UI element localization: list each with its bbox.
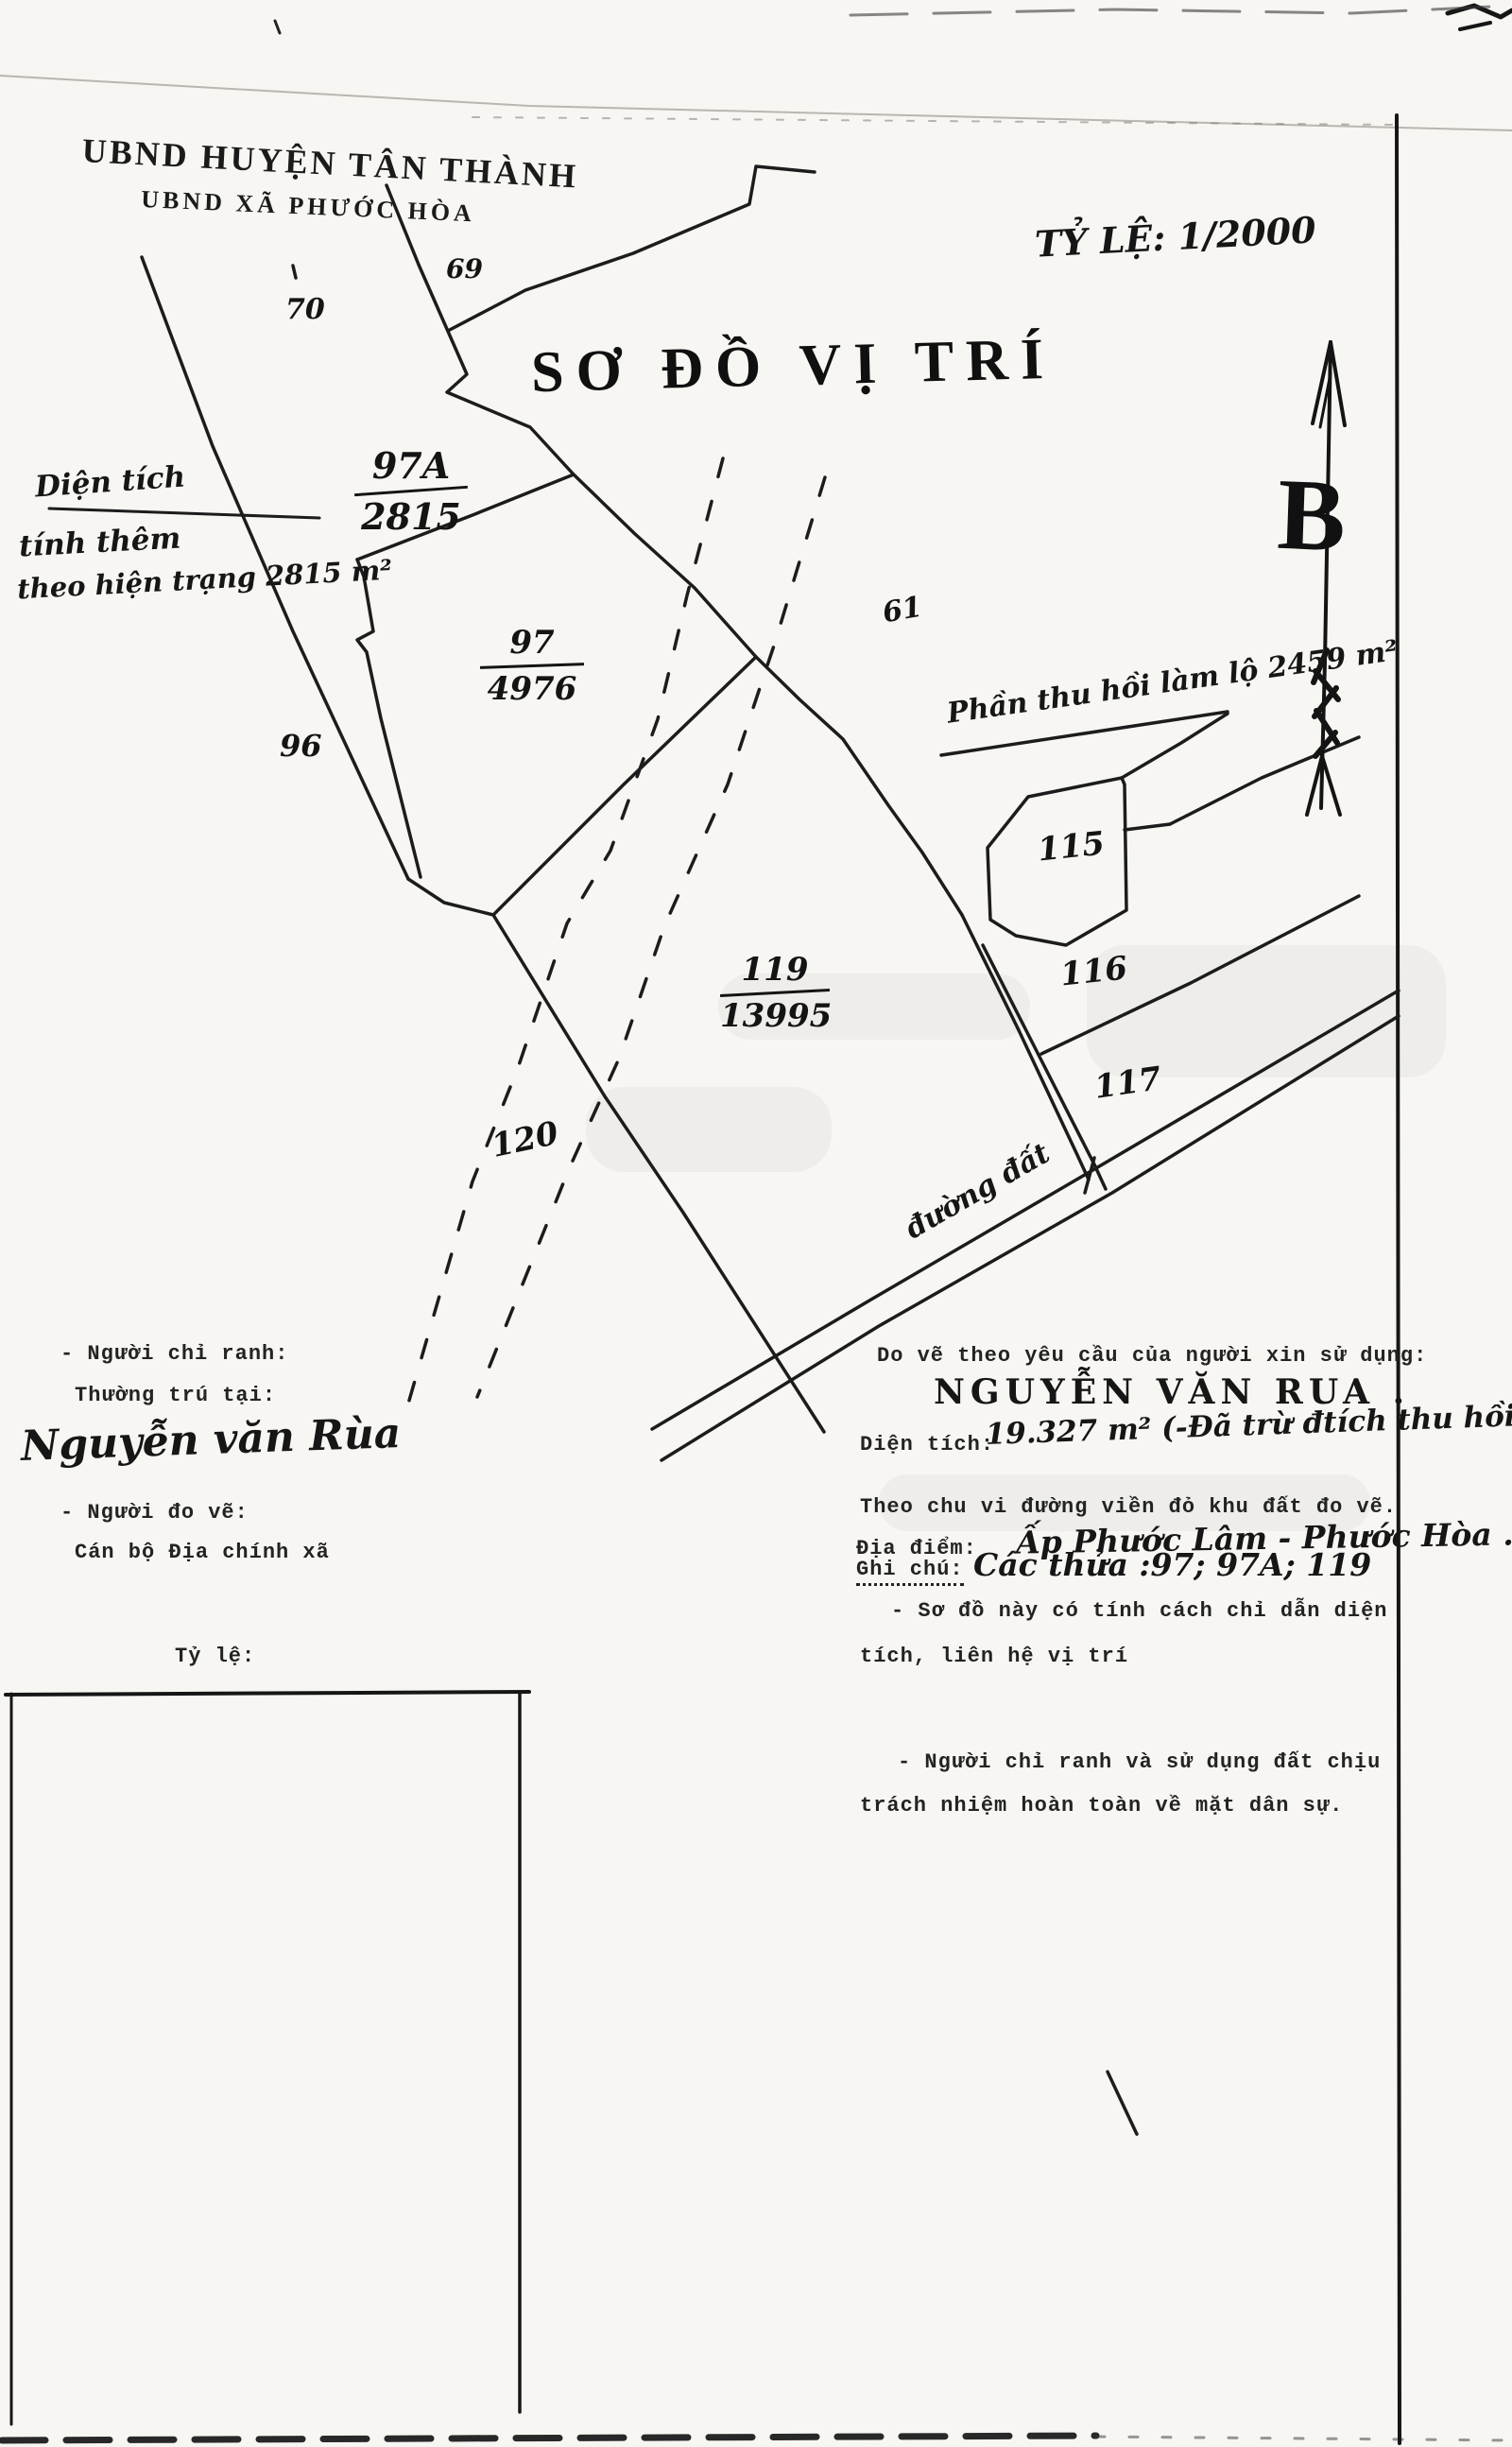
liability-line1: - Người chỉ ranh và sử dụng đất chịu — [898, 1750, 1381, 1774]
parcel-119-id: 119 — [720, 951, 830, 989]
parcel-label-116: 116 — [1058, 949, 1129, 993]
page-frame — [1397, 115, 1400, 2443]
parcel-label-70: 70 — [285, 293, 325, 326]
parcel-label-96: 96 — [280, 728, 322, 764]
dashed-lines — [406, 458, 825, 1410]
note-line2: - Sơ đồ này có tính cách chỉ dẫn diện — [891, 1599, 1387, 1623]
scale-box-label: Tỷ lệ: — [175, 1645, 255, 1668]
dashed-line-1 — [406, 458, 723, 1410]
page-title: SƠ ĐỒ VỊ TRÍ — [530, 326, 1057, 407]
north-label: B — [1276, 464, 1348, 568]
note-value: Các thửa :97; 97A; 119 — [973, 1546, 1371, 1583]
parcel-label-69: 69 — [446, 253, 483, 284]
stray-stroke — [1108, 2072, 1137, 2134]
parcel-97-id: 97 — [480, 624, 584, 662]
dashed-line-2 — [477, 477, 825, 1397]
surveyor-title: Cán bộ Địa chính xã — [75, 1541, 330, 1564]
fraction-bar — [480, 663, 584, 669]
scanned-survey-document: UBND HUYỆN TÂN THÀNH UBND XÃ PHƯỚC HÒA T… — [0, 0, 1512, 2447]
scale-box-top — [6, 1692, 529, 1695]
parcel-label-61: 61 — [880, 591, 924, 630]
parcel-label-115: 115 — [1036, 824, 1107, 869]
parcel-label-97a: 97A 2815 — [354, 444, 468, 538]
parcel-119-area: 13995 — [720, 997, 830, 1035]
liability-line2: trách nhiệm hoàn toàn về mặt dân sự. — [860, 1794, 1343, 1818]
scale-box — [6, 1692, 529, 2424]
boundary-northeast — [387, 185, 962, 915]
right-border-line — [1397, 115, 1400, 2443]
boundary-pointer-label: - Người chỉ ranh: — [60, 1342, 288, 1366]
residence-label: Thường trú tại: — [75, 1384, 276, 1407]
area-label: Diện tích: — [860, 1433, 994, 1456]
surveyor-label: - Người đo vẽ: — [60, 1501, 249, 1525]
parcel-label-119: 119 13995 — [720, 951, 830, 1035]
note-line3: tích, liên hệ vị trí — [860, 1645, 1128, 1668]
north-arrow — [1307, 342, 1345, 815]
parcel-boundaries — [49, 166, 1359, 2134]
parcel-label-97: 97 4976 — [480, 624, 584, 708]
boundary-97-west-notch — [357, 560, 421, 877]
parcel-97a-area: 2815 — [354, 495, 468, 538]
note-label: Ghi chú: — [856, 1558, 964, 1586]
fraction-bar — [720, 989, 830, 997]
parcel-97a-id: 97A — [354, 444, 468, 487]
request-line: Do vẽ theo yêu cầu của người xin sử dụng… — [877, 1344, 1427, 1368]
area-note-underline — [49, 508, 319, 518]
parcel-97-area: 4976 — [480, 670, 584, 708]
perimeter-line: Theo chu vi đường viền đỏ khu đất đo vẽ. — [860, 1495, 1397, 1519]
